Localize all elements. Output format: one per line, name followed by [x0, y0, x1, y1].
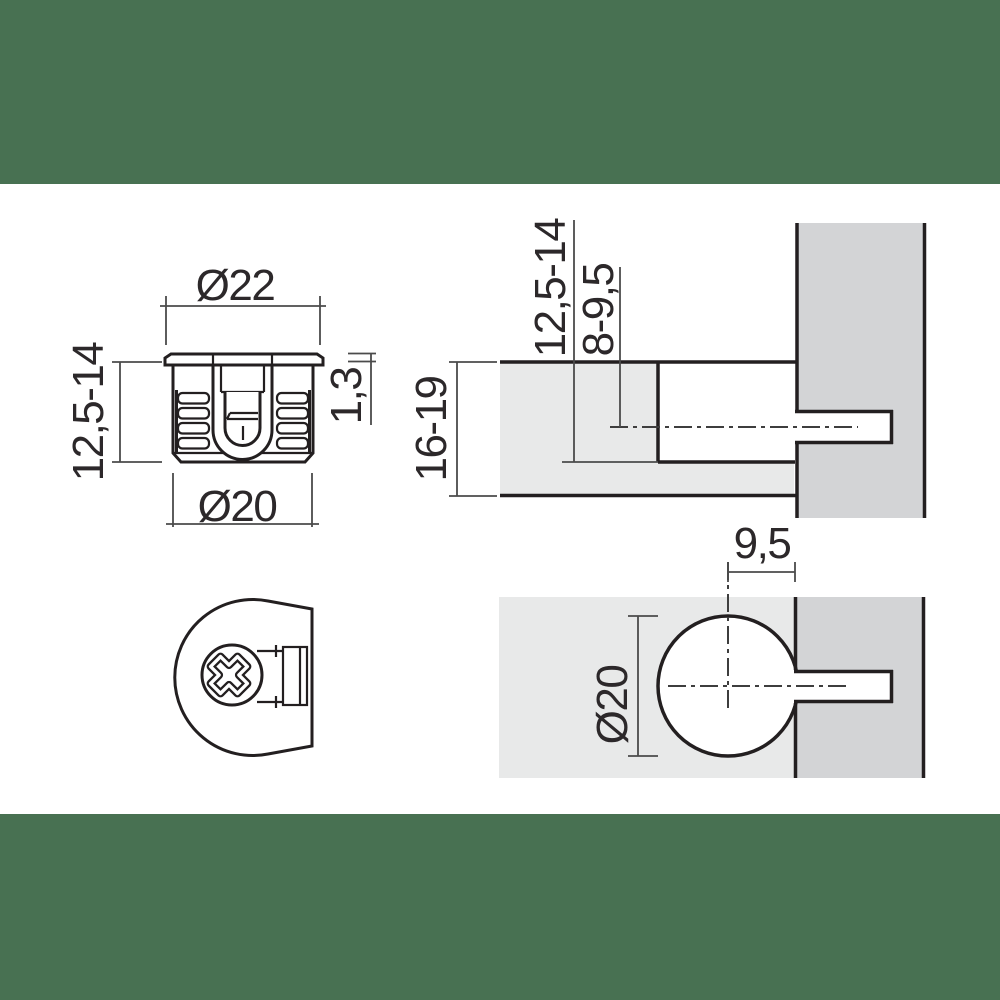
- technical-drawing-page: Ø22 12,5-14 1,3: [0, 0, 1000, 1000]
- dim-text-axis-depth: 8-9,5: [574, 264, 623, 357]
- dim-text-bore-depth: 12,5-14: [526, 218, 575, 358]
- dim-text-panel-thickness: 16-19: [407, 376, 456, 481]
- dim-text-cam-height: 12,5-14: [64, 342, 113, 482]
- dim-text-edge-distance: 9,5: [734, 519, 791, 568]
- dim-text-body-diameter: Ø20: [198, 482, 277, 531]
- dim-text-rim-height: 1,3: [322, 368, 371, 425]
- cam-slot-pocket: [283, 647, 307, 705]
- dim-text-cam-top-diameter: Ø22: [196, 261, 275, 310]
- cam-side-view: Ø22 12,5-14 1,3: [64, 261, 376, 531]
- drawing-canvas: Ø22 12,5-14 1,3: [0, 0, 1000, 1000]
- panel-plan-view: 9,5 Ø20: [499, 519, 925, 778]
- cam-disc: [202, 645, 262, 705]
- panel-section-view: 12,5-14 8-9,5 16-19: [407, 218, 926, 518]
- dim-line-cam-height: [112, 362, 162, 462]
- cam-plan-view: [175, 600, 312, 756]
- dim-text-bore-diameter: Ø20: [588, 666, 637, 745]
- cam-flange: [165, 354, 323, 365]
- cam-bore-cavity: [658, 363, 794, 462]
- bottom-band: [0, 814, 1000, 1000]
- top-band: [0, 0, 1000, 184]
- side-panel-section: [796, 223, 926, 518]
- dim-line-panel-thickness: [449, 362, 497, 496]
